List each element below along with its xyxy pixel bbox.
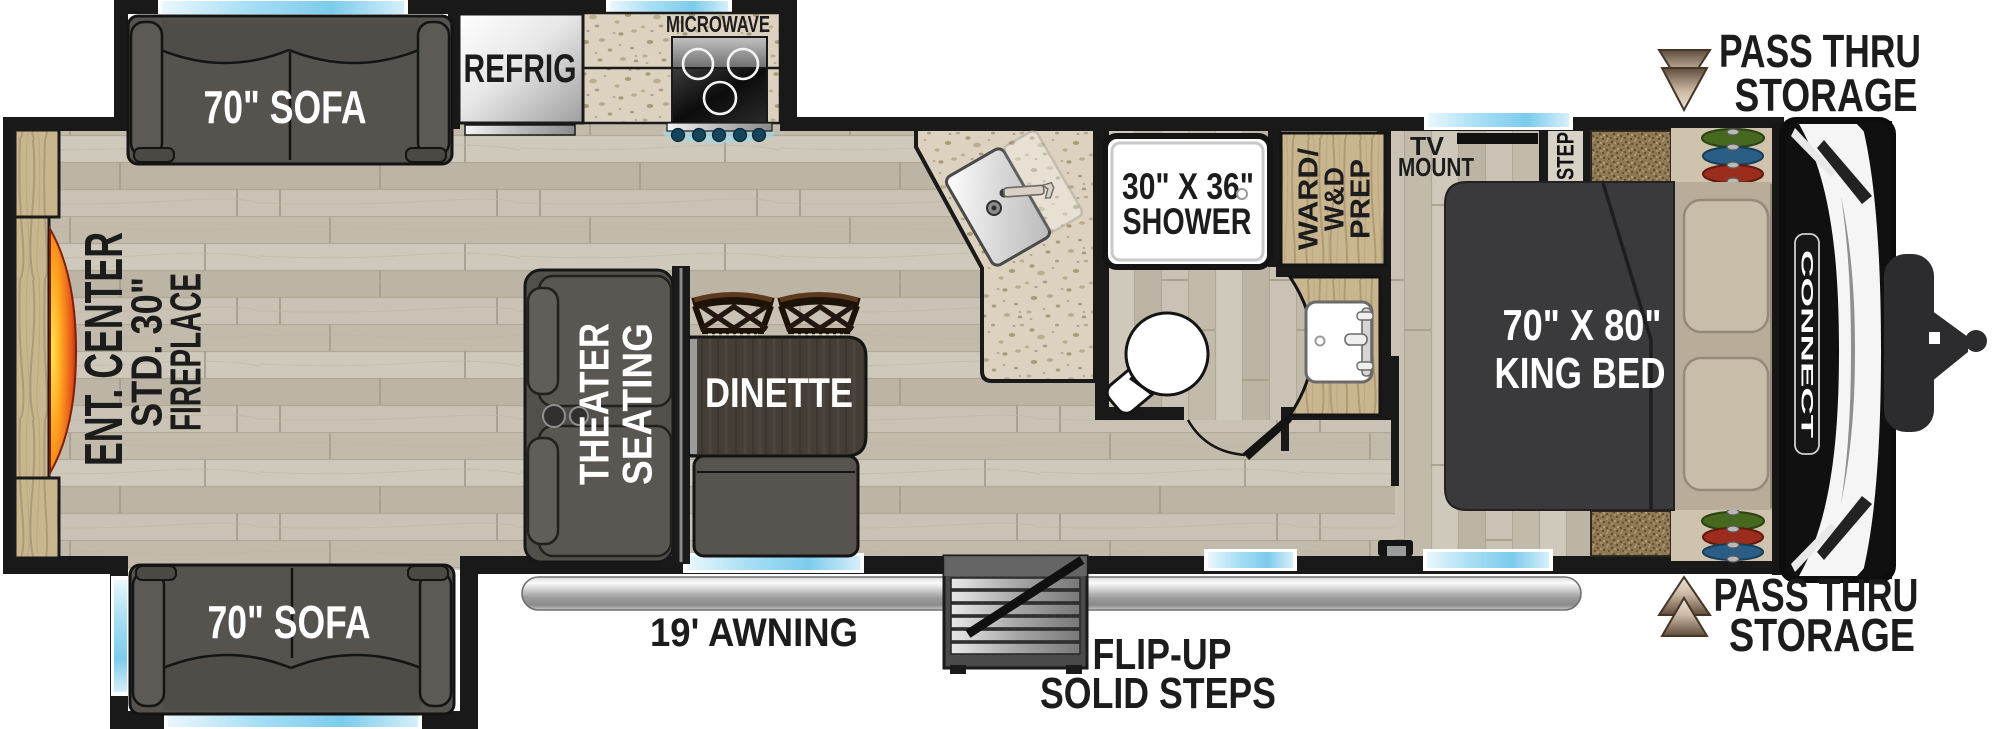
svg-text:70" SOFA: 70" SOFA <box>208 596 371 648</box>
svg-text:MOUNT: MOUNT <box>1398 152 1474 182</box>
svg-text:STEP: STEP <box>1553 132 1580 180</box>
svg-text:KING BED: KING BED <box>1495 349 1666 398</box>
svg-text:PREP: PREP <box>1345 159 1376 239</box>
svg-text:SOLID STEPS: SOLID STEPS <box>1040 669 1276 718</box>
svg-text:THEATER: THEATER <box>571 323 618 485</box>
svg-text:CONNECT: CONNECT <box>1798 250 1817 439</box>
svg-text:SHOWER: SHOWER <box>1123 201 1252 242</box>
svg-text:SEATING: SEATING <box>614 323 661 485</box>
svg-text:STORAGE: STORAGE <box>1729 609 1915 661</box>
svg-text:19' AWNING: 19' AWNING <box>650 611 858 655</box>
svg-text:FIREPLACE: FIREPLACE <box>162 273 211 431</box>
svg-text:70" X 80": 70" X 80" <box>1503 301 1662 350</box>
svg-text:DINETTE: DINETTE <box>705 369 853 416</box>
svg-text:MICROWAVE: MICROWAVE <box>666 11 770 37</box>
svg-text:70" SOFA: 70" SOFA <box>204 81 367 133</box>
svg-text:REFRIG: REFRIG <box>464 47 577 91</box>
svg-text:STORAGE: STORAGE <box>1735 69 1918 121</box>
